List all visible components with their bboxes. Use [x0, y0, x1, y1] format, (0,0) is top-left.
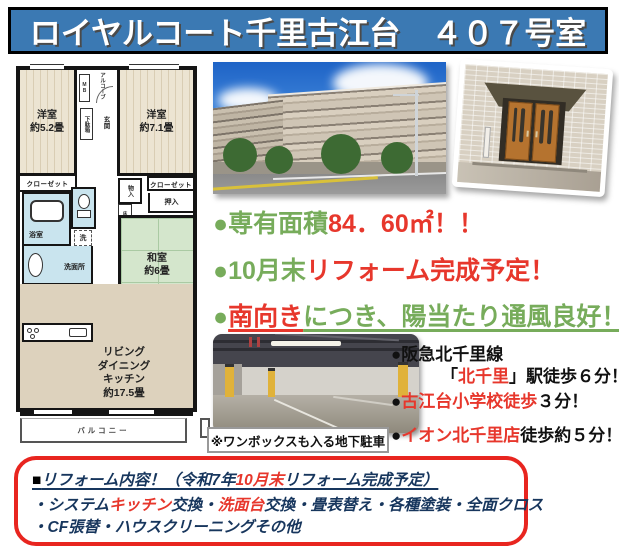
garage-photo: [213, 334, 419, 433]
access-station-post: 」駅徒歩６分！: [509, 367, 619, 386]
reform-title-post: リフォーム完成予定）: [284, 472, 439, 489]
access-school: ●古江台小学校徒歩３分！: [391, 387, 588, 412]
washroom: 洗面所: [22, 246, 93, 285]
sink-icon: [28, 253, 43, 277]
entrance-label: 玄関: [100, 116, 110, 144]
entrance-scene: [457, 64, 608, 192]
entrance-opening-shape: [499, 98, 566, 166]
entrance-photo: [452, 59, 614, 197]
square-bullet-icon: ■: [32, 472, 41, 489]
red-pipe-shape: [249, 337, 252, 347]
japanese-room-size: 約6畳: [144, 265, 170, 278]
access-school-post: ３分！: [537, 392, 588, 411]
closet-left: クローゼット: [20, 176, 77, 192]
entrance-door-right: [532, 104, 560, 163]
ldk-label: リビング ダイニング キッチン 約17.5畳: [69, 346, 179, 400]
access-station-name: 北千里: [458, 367, 509, 386]
tree-shape: [321, 134, 361, 174]
access-shop-bullet: ●: [391, 426, 401, 445]
feature-reform-date: ●10月末リフォーム完成予定！: [213, 251, 555, 287]
shoe-cabinet-label: 下駄箱: [83, 116, 91, 133]
tree-shape: [381, 142, 413, 174]
access-school-bullet: ●: [391, 392, 401, 411]
utility-pole-shape: [415, 90, 418, 176]
access-station-pre: 「: [441, 367, 458, 386]
reform-item1-kitchen: キッチン: [109, 497, 171, 514]
garage-ceiling-shape: [213, 334, 419, 367]
laundry-space: 洗: [74, 230, 92, 246]
reform-item1-post: 交換・畳表替え・各種塗装・全面クロス: [264, 497, 543, 514]
bedroom-1-size: 約5.2畳: [30, 122, 64, 135]
bathroom-label: 浴室: [29, 230, 43, 240]
feature-area: ●専有面積84．60㎡！！: [213, 204, 484, 240]
reform-box: ■リフォーム内容！（令和7年10月末リフォーム完成予定） ・システムキッチン交換…: [14, 456, 528, 546]
building-exterior-photo: [213, 62, 446, 194]
title-banner: ロイヤルコート千里古江台 ４０７号室: [8, 7, 608, 54]
real-estate-flyer: ロイヤルコート千里古江台 ４０７号室 洋室 約5.2畳 洋室 約7.1畳 MB …: [0, 0, 619, 552]
feature-reform-date-label: ●10月末: [213, 257, 306, 285]
stove-burner-icon: [30, 334, 35, 339]
reform-title: ■リフォーム内容！（令和7年10月末リフォーム完成予定）: [32, 468, 438, 490]
washroom-label: 洗面所: [64, 262, 85, 272]
meter-box-label: MB: [82, 82, 88, 94]
bathroom: 浴室: [22, 192, 71, 246]
meter-box: MB: [79, 74, 90, 102]
storage-label: 物入: [126, 185, 135, 197]
window-icon: [34, 410, 72, 414]
stove-burner-icon: [27, 328, 32, 333]
ceiling-light-shape: [271, 341, 341, 346]
door-window-slit: [519, 108, 525, 142]
bedroom-2-label: 洋室: [147, 109, 167, 122]
kitchen-sink-icon: [69, 328, 87, 337]
bedroom-1-label: 洋室: [37, 109, 57, 122]
balcony: バルコニー: [20, 418, 187, 443]
ldk-line3: キッチン: [69, 373, 179, 387]
entrance-sign-shape: [483, 127, 491, 158]
ldk-line2: ダイニング: [69, 360, 179, 374]
feature-south-text: につき、陽当たり通風良好！: [303, 303, 619, 331]
feature-south-keyword: 南向き: [228, 303, 303, 331]
entrance-door-left: [504, 102, 532, 161]
garage-caption-box: ※ワンボックスも入る地下駐車: [207, 427, 389, 453]
door-window-slit: [539, 109, 545, 143]
bedroom-2-size: 約7.1畳: [140, 122, 174, 135]
tree-shape: [265, 146, 293, 174]
ldk-line1: リビング: [69, 346, 179, 360]
reform-title-date: 10月末: [236, 472, 284, 489]
reform-item-2: ・CF張替・ハウスクリーニングその他: [32, 515, 301, 537]
access-shop-name: イオン北千里店: [401, 426, 520, 445]
bedroom-2: 洋室 約7.1畳: [117, 70, 193, 176]
ldk-line4: 約17.5畳: [69, 387, 179, 401]
closet-right: クローゼット: [147, 176, 193, 191]
feature-area-label: ●専有面積: [213, 210, 328, 238]
red-pipe-shape: [257, 337, 260, 347]
yellow-pillar-shape: [268, 368, 275, 397]
floor-plan: 洋室 約5.2畳 洋室 約7.1畳 MB アルコーブ 下駄箱 玄関 クローゼット…: [14, 62, 210, 454]
pipe-shape: [213, 348, 419, 351]
stove-burner-icon: [34, 328, 39, 333]
reform-item-1: ・システムキッチン交換・洗面台交換・畳表替え・各種塗装・全面クロス: [32, 493, 543, 515]
tree-shape: [223, 138, 257, 172]
reform-item1-pre: ・システム: [32, 497, 109, 514]
japanese-room-label: 和室: [147, 252, 167, 265]
utility-pole-arm: [393, 94, 419, 96]
reform-item1-vanity: 洗面台: [218, 497, 265, 514]
toilet-room: [71, 187, 96, 229]
oshiire-closet: 押入: [148, 193, 193, 213]
reform-item1-mid: 交換・: [171, 497, 218, 514]
shoe-cabinet: 下駄箱: [80, 108, 93, 140]
garage-back-wall-shape: [213, 367, 419, 397]
kitchen-counter: [22, 323, 93, 342]
access-shop-post: 徒歩約５分！: [520, 426, 619, 445]
feature-reform-date-value: リフォーム完成予定！: [306, 257, 555, 285]
balcony-wall: [20, 408, 193, 416]
toilet-tank-icon: [77, 210, 91, 218]
feature-south-facing: ●南向きにつき、陽当たり通風良好！: [213, 297, 619, 333]
garage-caption-text: ※ワンボックスも入る地下駐車: [211, 431, 385, 450]
bathtub-icon: [30, 200, 64, 222]
access-station: 「北千里」駅徒歩６分！: [441, 362, 619, 387]
reform-title-pre: リフォーム内容！（令和7年: [41, 472, 235, 489]
page-title: ロイヤルコート千里古江台 ４０７号室: [30, 8, 586, 53]
feature-south-bullet: ●: [213, 303, 228, 331]
feature-area-value: 84．60㎡！！: [328, 210, 484, 238]
door-handle-icon: [535, 131, 537, 137]
window-icon: [109, 410, 154, 414]
access-school-name: 古江台小学校徒歩: [401, 392, 537, 411]
door-window-slit: [511, 108, 517, 142]
access-shop: ●イオン北千里店徒歩約５分！: [391, 421, 619, 446]
door-window-slit: [547, 110, 553, 144]
toilet-icon: [78, 194, 90, 209]
door-handle-icon: [527, 131, 529, 137]
bedroom-1: 洋室 約5.2畳: [20, 70, 77, 176]
yellow-pillar-shape: [225, 364, 234, 397]
storage-closet: 物入: [118, 178, 142, 204]
